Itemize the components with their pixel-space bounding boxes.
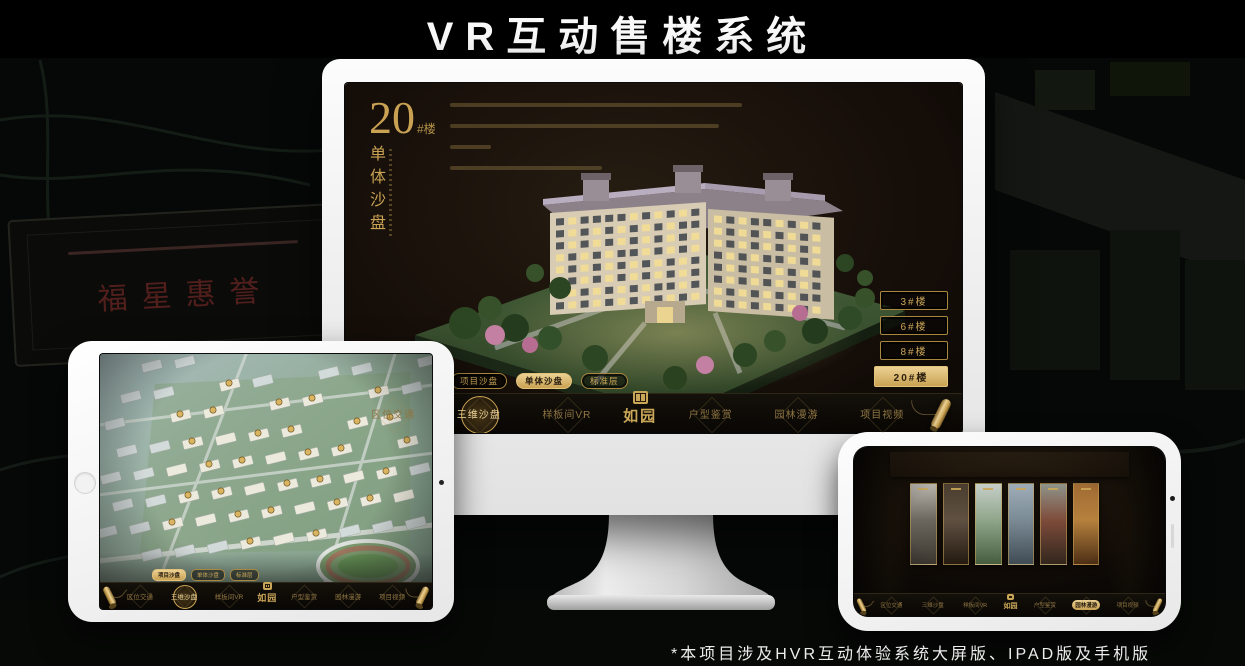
- aerial-vignette: [100, 354, 432, 609]
- footnote: *本项目涉及HVR互动体验系统大屏版、IPAD版及手机版: [671, 640, 1151, 664]
- ruyuan-logo: 如园: [623, 391, 657, 426]
- seal-icon: [1007, 594, 1014, 600]
- floor-button-group: 3#楼6#楼8#楼20#楼: [874, 291, 948, 387]
- scroll-roll-icon[interactable]: [102, 585, 117, 606]
- nav-item-0[interactable]: 区位交通: [123, 589, 157, 603]
- seal-icon: [633, 391, 648, 404]
- building-number-suffix: #楼: [417, 122, 436, 136]
- home-button[interactable]: [74, 472, 96, 494]
- logo-text: 如园: [623, 405, 657, 426]
- nav-item-4[interactable]: 园林漫游: [331, 589, 365, 603]
- scroll-roll-icon[interactable]: [929, 397, 952, 430]
- phone-screen: 区位交通三维沙盘样板间VR如园户型鉴赏园林漫游项目视频: [854, 447, 1165, 616]
- nav-item-1[interactable]: 三维沙盘: [167, 589, 201, 603]
- nav-item-2[interactable]: 样板间VR: [211, 589, 248, 603]
- nav-item-5[interactable]: 项目视频: [1114, 600, 1142, 610]
- monitor-subtab-1[interactable]: 单体沙盘: [516, 373, 572, 389]
- logo-text: 如园: [257, 591, 277, 604]
- nav-item-0[interactable]: 区位交通: [877, 600, 905, 610]
- nav-item-4[interactable]: 园林漫游: [765, 402, 829, 425]
- logo-text: 如园: [1004, 601, 1018, 611]
- scroll-roll-icon[interactable]: [415, 585, 430, 606]
- floor-button-1[interactable]: 6#楼: [880, 316, 948, 335]
- monitor-subtab-0[interactable]: 项目沙盘: [451, 373, 507, 389]
- floor-button-3[interactable]: 20#楼: [874, 366, 948, 387]
- camera-icon: [1170, 496, 1175, 501]
- panorama-vignette: [854, 447, 1165, 616]
- page-title: VR互动售楼系统: [0, 4, 1245, 62]
- ipad-subtab-1[interactable]: 单体沙盘: [191, 569, 225, 581]
- subtitle-pinyin-decoration: [389, 149, 392, 237]
- scroll-roll-icon[interactable]: [1152, 597, 1163, 613]
- nav-item-3[interactable]: 户型鉴赏: [287, 589, 321, 603]
- speaker-icon: [1171, 524, 1174, 548]
- ruyuan-logo: 如园: [1004, 594, 1018, 611]
- monitor-subtabs: 项目沙盘单体沙盘标准层: [451, 373, 628, 389]
- building-subtitle: 单体沙盘: [363, 145, 387, 237]
- description-text-blurred: [450, 103, 742, 187]
- building-heading: 20#楼: [369, 95, 449, 141]
- phone-device: 区位交通三维沙盘样板间VR如园户型鉴赏园林漫游项目视频: [838, 432, 1181, 631]
- scroll-roll-icon[interactable]: [856, 597, 867, 613]
- nav-item-3[interactable]: 户型鉴赏: [679, 402, 743, 425]
- floor-button-2[interactable]: 8#楼: [880, 341, 948, 360]
- nav-item-2[interactable]: 样板间VR: [960, 600, 990, 610]
- ipad-device: 项目沙盘单体沙盘标准层 区位交通三维沙盘样板间VR如园户型鉴赏园林漫游项目视频: [68, 341, 454, 622]
- nav-item-1[interactable]: 三维沙盘: [447, 402, 511, 425]
- monitor-subtab-2[interactable]: 标准层: [581, 373, 628, 389]
- ipad-screen: 项目沙盘单体沙盘标准层 区位交通三维沙盘样板间VR如园户型鉴赏园林漫游项目视频: [100, 354, 432, 609]
- ruyuan-logo: 如园: [257, 582, 277, 604]
- nav-item-3[interactable]: 户型鉴赏: [1031, 600, 1059, 610]
- ipad-subtabs: 项目沙盘单体沙盘标准层: [152, 569, 259, 581]
- monitor-stand: [545, 513, 777, 615]
- seal-icon: [263, 582, 272, 590]
- camera-icon: [439, 480, 444, 485]
- nav-item-4[interactable]: 园林漫游: [1072, 600, 1100, 610]
- building-number: 20: [369, 92, 415, 143]
- nav-item-0[interactable]: 区位交通: [361, 402, 425, 425]
- ipad-subtab-2[interactable]: 标准层: [230, 569, 259, 581]
- nav-item-5[interactable]: 项目视频: [375, 589, 409, 603]
- phone-navbar: 区位交通三维沙盘样板间VR如园户型鉴赏园林漫游项目视频: [854, 593, 1165, 616]
- floor-button-0[interactable]: 3#楼: [880, 291, 948, 310]
- ipad-navbar: 区位交通三维沙盘样板间VR如园户型鉴赏园林漫游项目视频: [100, 582, 432, 609]
- nav-item-5[interactable]: 项目视频: [850, 402, 914, 425]
- ipad-subtab-0[interactable]: 项目沙盘: [152, 569, 186, 581]
- nav-item-1[interactable]: 三维沙盘: [919, 600, 947, 610]
- stage: 福星惠誉 VR互动售楼系统: [0, 0, 1245, 666]
- nav-item-2[interactable]: 样板间VR: [532, 402, 601, 425]
